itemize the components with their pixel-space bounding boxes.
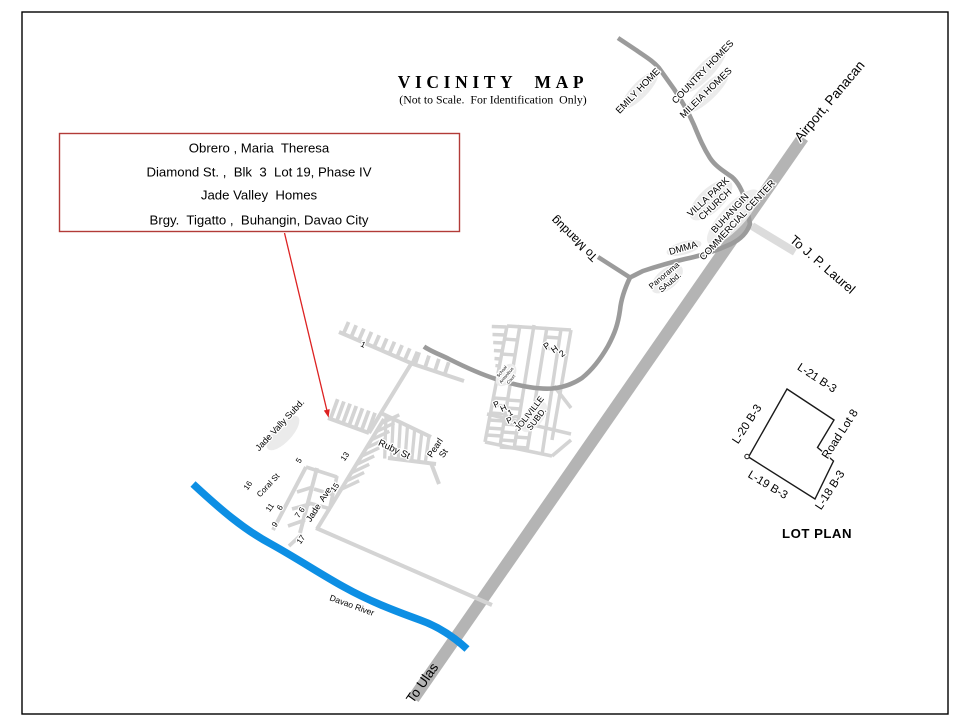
svg-text:(Not to Scale. For Identifica: (Not to Scale. For Identification Only) [399,93,586,107]
svg-text:Jade Valley Homes: Jade Valley Homes [201,188,318,203]
svg-text:VICINITY MAP: VICINITY MAP [398,72,588,92]
svg-text:Brgy. Tigatto , Buhangin, Da: Brgy. Tigatto , Buhangin, Davao City [150,213,369,228]
svg-text:Diamond St. , Blk 3 Lot 19,: Diamond St. , Blk 3 Lot 19, Phase IV [146,165,371,180]
svg-text:Obrero , Maria Theresa: Obrero , Maria Theresa [189,141,330,156]
svg-text:LOT PLAN: LOT PLAN [782,526,852,541]
